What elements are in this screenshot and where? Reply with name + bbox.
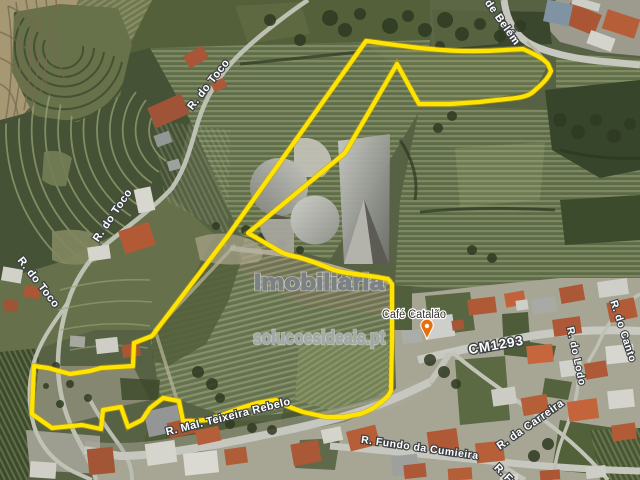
svg-text:solucoesideais.pt: solucoesideais.pt: [253, 328, 386, 349]
svg-text:Café Catalão: Café Catalão: [382, 309, 446, 321]
